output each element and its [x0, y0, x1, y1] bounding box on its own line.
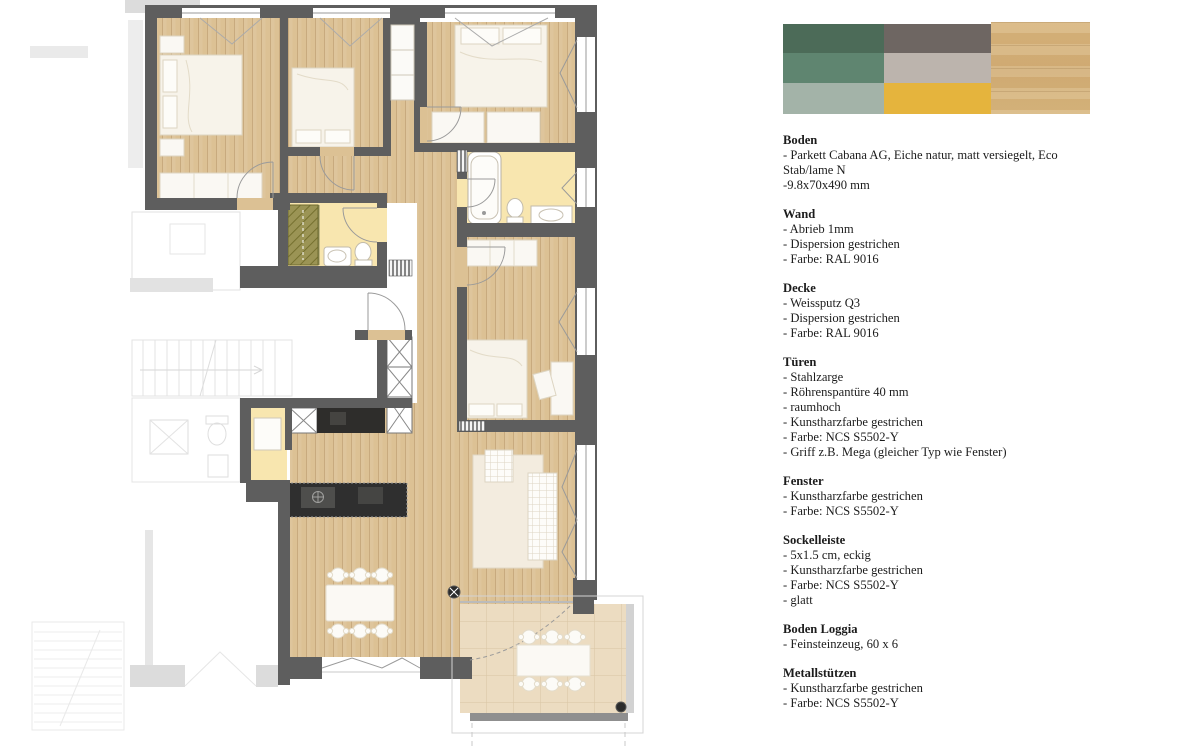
washbasin-2 [324, 247, 351, 266]
spec-item: - Stahlzarge [783, 370, 1091, 385]
corridor-floor [417, 203, 457, 425]
washer [254, 418, 281, 450]
spec-panel: Boden - Parkett Cabana AG, Eiche natur, … [783, 24, 1091, 725]
loggia-railing [470, 713, 628, 721]
dining-table [326, 568, 394, 638]
swatch-yellow [884, 83, 991, 114]
spec-section-metallstuetzen: Metallstützen - Kunstharzfarbe gestriche… [783, 666, 1091, 711]
spec-section-boden-loggia: Boden Loggia - Feinsteinzeug, 60 x 6 [783, 622, 1091, 652]
spec-item: - 5x1.5 cm, eckig [783, 548, 1091, 563]
spec-item: - Feinsteinzeug, 60 x 6 [783, 637, 1091, 652]
bed-4 [465, 340, 527, 418]
swatch-light-greige [884, 53, 991, 83]
swatch-medium-green [783, 53, 884, 83]
spec-item: - raumhoch [783, 400, 1091, 415]
swatch-dark-green [783, 24, 884, 53]
spec-item: - Farbe: RAL 9016 [783, 326, 1091, 341]
spec-item: - Abrieb 1mm [783, 222, 1091, 237]
entrance-door [368, 293, 405, 330]
spec-item: - Farbe: NCS S5502-Y [783, 504, 1091, 519]
spec-section-sockelleiste: Sockelleiste - 5x1.5 cm, eckig - Kunstha… [783, 533, 1091, 608]
toilet-2 [355, 243, 372, 267]
spec-section-wand: Wand - Abrieb 1mm - Dispersion gestriche… [783, 207, 1091, 267]
spec-item: - Kunstharzfarbe gestrichen [783, 563, 1091, 578]
spec-item: - Röhrenspantüre 40 mm [783, 385, 1091, 400]
toilet [507, 199, 523, 224]
section-title: Wand [783, 207, 1091, 222]
floor-plan [0, 0, 660, 750]
spec-item: - Parkett Cabana AG, Eiche natur, matt v… [783, 148, 1091, 178]
spec-item: - Farbe: NCS S5502-Y [783, 578, 1091, 593]
spec-item: - Griff z.B. Mega (gleicher Typ wie Fens… [783, 445, 1091, 460]
section-title: Sockelleiste [783, 533, 1091, 548]
washbasin [531, 206, 572, 224]
spec-item: - Weissputz Q3 [783, 296, 1091, 311]
spec-section-tueren: Türen - Stahlzarge - Röhrenspantüre 40 m… [783, 355, 1091, 460]
spec-section-fenster: Fenster - Kunstharzfarbe gestrichen - Fa… [783, 474, 1091, 519]
kitchen-tall-units [387, 337, 412, 433]
section-title: Boden [783, 133, 1091, 148]
material-palette [783, 24, 1091, 114]
spec-item: - Kunstharzfarbe gestrichen [783, 415, 1091, 430]
spec-item: - Kunstharzfarbe gestrichen [783, 489, 1091, 504]
spec-item: - Dispersion gestrichen [783, 237, 1091, 252]
swatch-sage-green [783, 83, 884, 114]
stair-lower [32, 622, 124, 730]
spec-item: - Farbe: RAL 9016 [783, 252, 1091, 267]
swatch-oak-parquet [991, 22, 1090, 114]
section-title: Decke [783, 281, 1091, 296]
neighbor-bathroom [132, 398, 240, 482]
floor-plan-drawing [0, 0, 660, 750]
steel-column-2 [616, 702, 626, 712]
bed-3 [455, 25, 547, 107]
projection-lines [472, 723, 625, 750]
swatch-dark-taupe [884, 24, 991, 53]
spec-section-boden: Boden - Parkett Cabana AG, Eiche natur, … [783, 133, 1091, 193]
kitchen-counter [317, 408, 385, 433]
spec-item: - Farbe: NCS S5502-Y [783, 430, 1091, 445]
steel-column [448, 586, 460, 598]
kitchen-island [287, 483, 407, 517]
stairwell [132, 340, 292, 396]
spec-item: - glatt [783, 593, 1091, 608]
material-specs: Boden - Parkett Cabana AG, Eiche natur, … [783, 133, 1091, 711]
spec-section-decke: Decke - Weissputz Q3 - Dispersion gestri… [783, 281, 1091, 341]
spec-item: - Kunstharzfarbe gestrichen [783, 681, 1091, 696]
section-title: Fenster [783, 474, 1091, 489]
spec-item: -9.8x70x490 mm [783, 178, 1091, 193]
spec-item: - Farbe: NCS S5502-Y [783, 696, 1091, 711]
bed-2 [292, 68, 354, 147]
built-in-shelf [391, 25, 414, 100]
section-title: Türen [783, 355, 1091, 370]
cooktop [358, 487, 383, 504]
page: Boden - Parkett Cabana AG, Eiche natur, … [0, 0, 1200, 750]
wardrobe-1 [160, 173, 262, 199]
loggia-table [517, 630, 590, 691]
section-title: Boden Loggia [783, 622, 1091, 637]
section-title: Metallstützen [783, 666, 1091, 681]
spec-item: - Dispersion gestrichen [783, 311, 1091, 326]
